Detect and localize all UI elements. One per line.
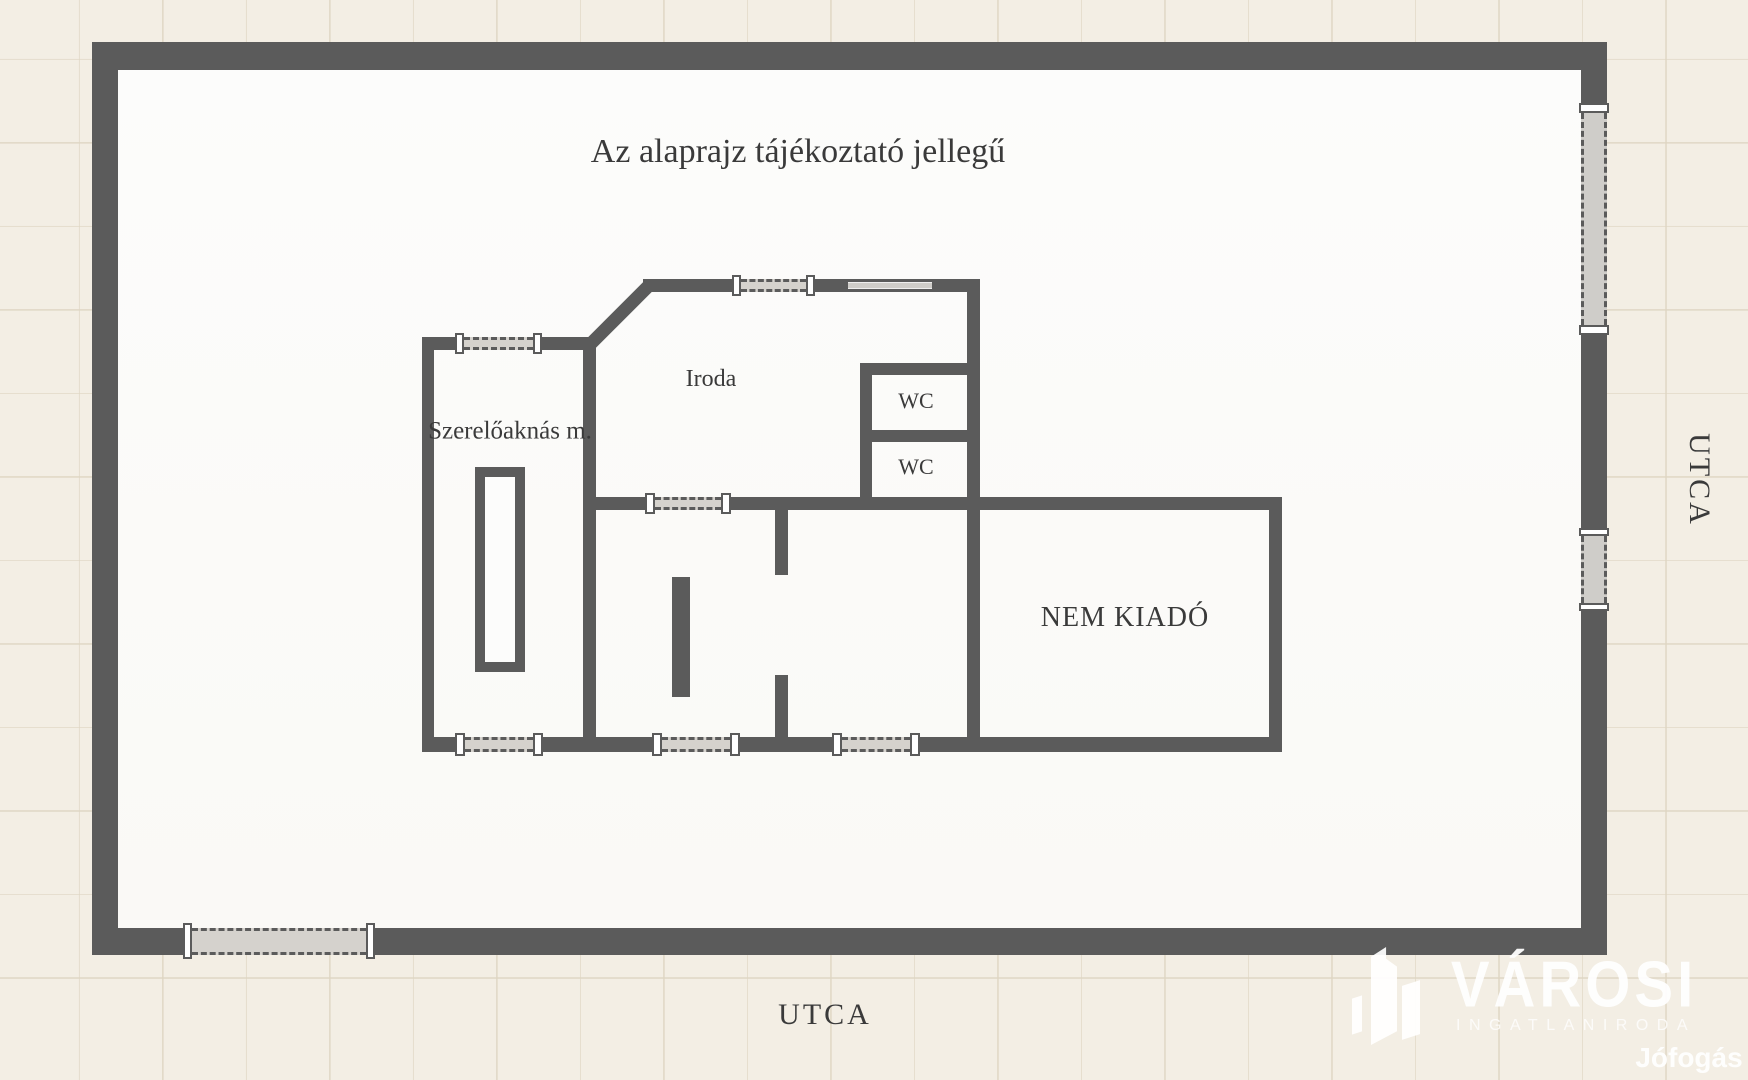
door-post (455, 333, 464, 354)
workshop-wall-right (583, 344, 596, 751)
workshop-door (464, 337, 533, 350)
wc-upper-label: WC (898, 390, 933, 412)
office-window (848, 279, 932, 292)
door-post (533, 333, 542, 354)
door-post (732, 275, 741, 296)
window-cap (1579, 325, 1609, 335)
service-pit (475, 467, 525, 672)
door-post (832, 733, 842, 756)
office-door (741, 279, 806, 292)
window-cap (1579, 528, 1609, 536)
window-cap (1579, 103, 1609, 113)
not-for-rent-label: NEM KIADÓ (1041, 604, 1209, 632)
wc-wall-middle (860, 430, 980, 442)
outer-wall-left (92, 42, 118, 955)
street-window-upper (1581, 113, 1607, 325)
office-label: Iroda (686, 367, 737, 391)
window-cap (1579, 603, 1609, 611)
door-post (533, 733, 543, 756)
workshop-wall-left (422, 337, 434, 751)
door-post (645, 493, 655, 514)
jofogas-watermark: Jófogás (1635, 1044, 1742, 1072)
wc-wall-top (860, 363, 980, 375)
partition-stub-lower (775, 675, 788, 737)
entrance-door (192, 928, 366, 955)
agency-subtitle: INGATLANIRODA (1456, 1018, 1696, 1034)
street-label-bottom: UTCA (778, 1000, 872, 1030)
bottom-door-middle (662, 737, 730, 752)
buildings-icon (1350, 941, 1422, 1049)
bottom-door-right (842, 737, 910, 752)
door-post (366, 923, 375, 959)
door-post (455, 733, 465, 756)
door-post (652, 733, 662, 756)
main-vertical-wall (967, 279, 980, 752)
building-shape (1371, 947, 1397, 1045)
partition-stub-upper (775, 510, 788, 575)
middle-wall-door (655, 497, 721, 510)
workshop-label: Szerelőaknás m. (428, 419, 592, 444)
street-window-lower (1581, 536, 1607, 603)
wc-lower-label: WC (898, 456, 933, 478)
agency-name: VÁROSI (1451, 953, 1697, 1018)
building-shape (1402, 980, 1420, 1040)
door-post (910, 733, 920, 756)
door-post (721, 493, 731, 514)
door-post (806, 275, 815, 296)
building-shape (1352, 995, 1362, 1034)
street-label-right: UTCA (1684, 433, 1714, 527)
door-post (730, 733, 740, 756)
plan-disclaimer-title: Az alaprajz tájékoztató jellegű (591, 135, 1005, 169)
bottom-door-workshop (465, 737, 533, 752)
outer-wall-top (92, 42, 1607, 70)
door-post (183, 923, 192, 959)
freestanding-wall (672, 577, 690, 697)
floorplan-canvas: Az alaprajz tájékoztató jellegű (0, 0, 1748, 1080)
not-for-rent-wall-right (1269, 497, 1282, 752)
